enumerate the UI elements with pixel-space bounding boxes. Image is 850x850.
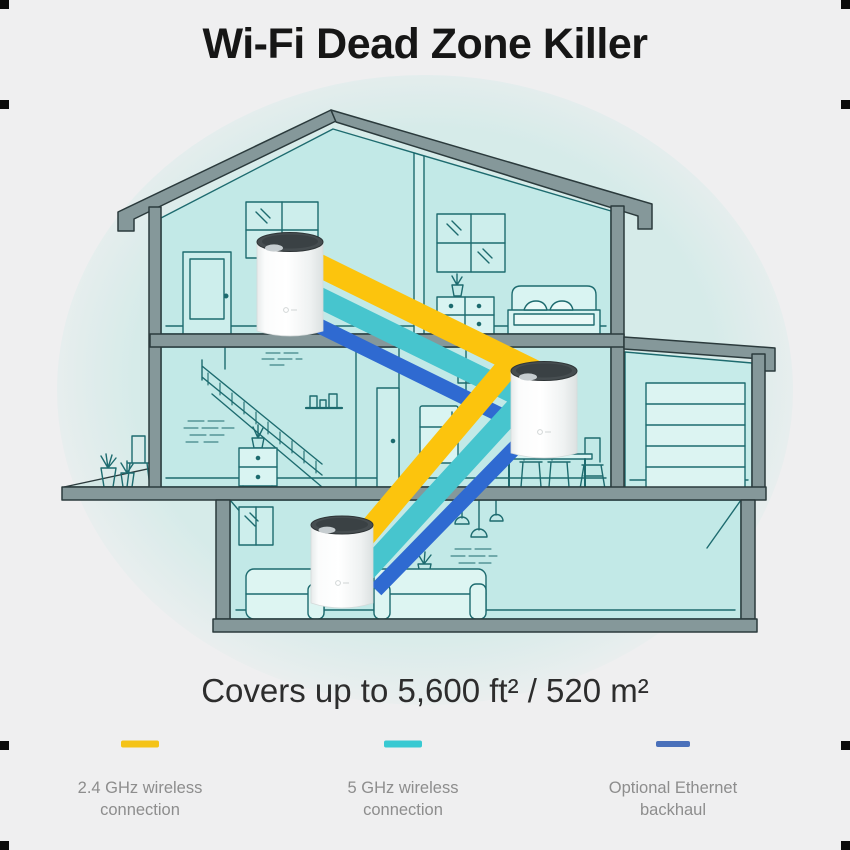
nightstand (239, 448, 277, 489)
legend-dash-5ghz-icon (384, 740, 422, 748)
legend-dash-5ghz (384, 741, 422, 748)
led-notch (319, 527, 336, 534)
legend: 2.4 GHz wireless connection 5 GHz wirele… (0, 740, 850, 840)
crop-mark (0, 841, 9, 850)
legend-dash-ethernet (656, 741, 690, 747)
wall-right-post (611, 206, 624, 492)
bed (508, 286, 600, 334)
crop-mark (841, 0, 850, 9)
legend-dash-ethernet-icon (656, 740, 690, 748)
led-notch (519, 373, 537, 380)
garage-door (646, 383, 745, 488)
hall-door (377, 388, 399, 487)
deco-unit-top-floor (257, 233, 323, 337)
crop-mark (841, 100, 850, 109)
attic-door (183, 252, 231, 334)
crop-mark (841, 841, 850, 850)
led-notch (265, 244, 283, 251)
ground-wall-left (216, 500, 230, 619)
coverage-text: Covers up to 5,600 ft² / 520 m² (0, 672, 850, 710)
house-illustration (0, 0, 850, 850)
crop-mark (0, 100, 9, 109)
legend-label-5ghz: 5 GHz wireless connection (327, 778, 479, 822)
legend-item-5ghz: 5 GHz wireless connection (303, 740, 503, 822)
bedroom-window (437, 214, 505, 272)
legend-item-24ghz: 2.4 GHz wireless connection (40, 740, 240, 822)
deco-unit-ground-floor (311, 516, 373, 608)
crop-mark (0, 741, 9, 750)
garage-wall-right (752, 354, 765, 488)
deco-unit-middle-floor (511, 362, 577, 459)
legend-dash-24ghz-icon (121, 740, 159, 748)
crop-mark (841, 741, 850, 750)
legend-label-24ghz: 2.4 GHz wireless connection (64, 778, 216, 822)
slab-bottom (213, 619, 757, 632)
legend-item-ethernet: Optional Ethernet backhaul (570, 740, 776, 822)
legend-label-ethernet: Optional Ethernet backhaul (597, 778, 749, 822)
ground-window (239, 507, 273, 545)
ground-wall-right (741, 500, 755, 619)
legend-dash-24ghz (121, 741, 159, 748)
page: Wi-Fi Dead Zone Killer (0, 0, 850, 850)
crop-mark (0, 0, 9, 9)
